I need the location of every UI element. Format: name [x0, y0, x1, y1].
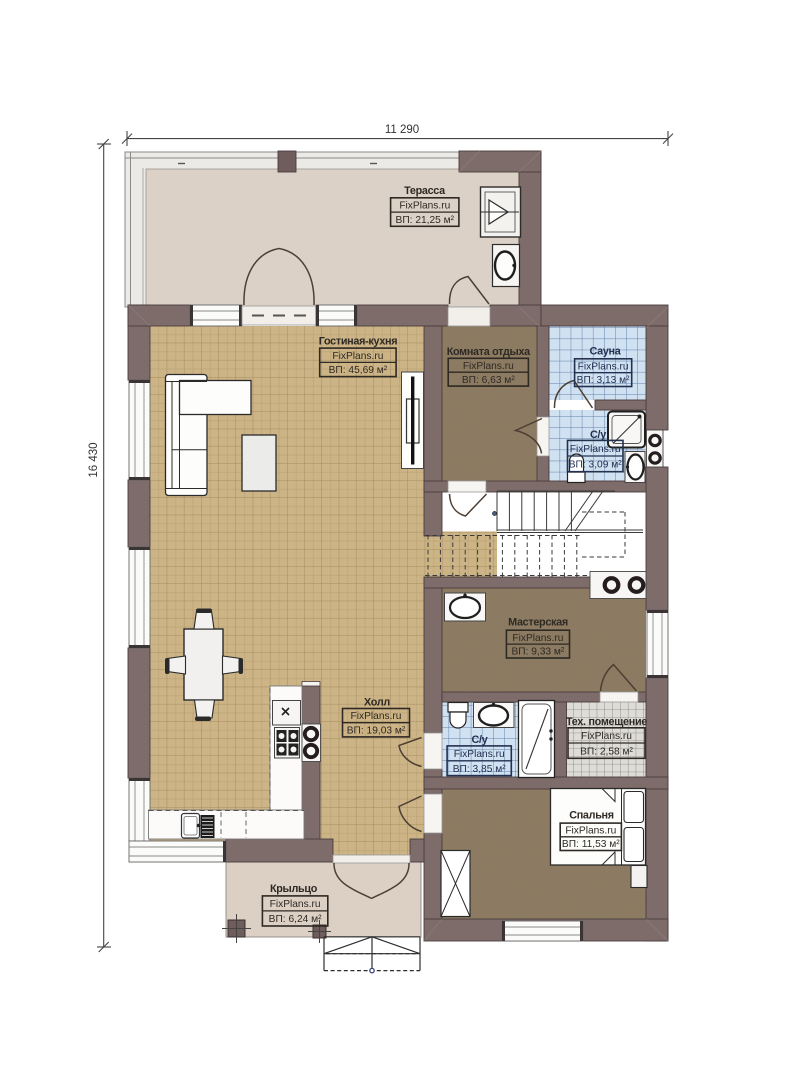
svg-text:ВП: 2,58 м²: ВП: 2,58 м² — [580, 746, 633, 757]
svg-text:FixPlans.ru: FixPlans.ru — [454, 749, 505, 760]
svg-text:ВП: 6,24 м²: ВП: 6,24 м² — [269, 914, 322, 925]
svg-text:ВП: 11,53 м²: ВП: 11,53 м² — [562, 839, 620, 850]
svg-text:Сауна: Сауна — [590, 346, 622, 358]
svg-text:FixPlans.ru: FixPlans.ru — [399, 201, 450, 212]
svg-text:С/у: С/у — [472, 734, 488, 746]
svg-text:ВП: 9,33 м²: ВП: 9,33 м² — [511, 647, 564, 658]
svg-text:ВП: 3,09 м²: ВП: 3,09 м² — [569, 460, 622, 471]
svg-text:FixPlans.ru: FixPlans.ru — [570, 444, 621, 455]
svg-text:FixPlans.ru: FixPlans.ru — [581, 731, 632, 742]
svg-text:FixPlans.ru: FixPlans.ru — [512, 633, 563, 644]
svg-text:Холл: Холл — [364, 697, 390, 709]
svg-text:С/у: С/у — [590, 429, 606, 441]
svg-text:ВП: 21,25 м²: ВП: 21,25 м² — [396, 215, 455, 226]
svg-text:FixPlans.ru: FixPlans.ru — [463, 361, 514, 372]
svg-text:FixPlans.ru: FixPlans.ru — [270, 899, 321, 910]
svg-text:FixPlans.ru: FixPlans.ru — [578, 361, 629, 372]
svg-text:ВП: 3,85 м²: ВП: 3,85 м² — [453, 764, 506, 775]
svg-text:16 430: 16 430 — [88, 442, 100, 477]
svg-text:Терасса: Терасса — [404, 185, 446, 197]
svg-text:ВП: 3,13 м²: ВП: 3,13 м² — [577, 375, 630, 386]
svg-text:ВП: 19,03 м²: ВП: 19,03 м² — [347, 725, 406, 736]
svg-text:Гостиная-кухня: Гостиная-кухня — [319, 336, 398, 348]
svg-text:Спальня: Спальня — [569, 810, 614, 822]
svg-text:Тех. помещение: Тех. помещение — [566, 716, 647, 728]
svg-text:ВП: 6,63 м²: ВП: 6,63 м² — [462, 375, 515, 386]
svg-text:11 290: 11 290 — [385, 124, 419, 136]
svg-text:Комната отдыха: Комната отдыха — [447, 346, 531, 358]
svg-text:Мастерская: Мастерская — [508, 617, 568, 629]
svg-text:FixPlans.ru: FixPlans.ru — [565, 826, 616, 837]
svg-text:FixPlans.ru: FixPlans.ru — [351, 711, 402, 722]
svg-text:Крыльцо: Крыльцо — [270, 883, 318, 895]
svg-text:ВП: 45,69 м²: ВП: 45,69 м² — [329, 365, 388, 376]
svg-text:FixPlans.ru: FixPlans.ru — [332, 351, 383, 362]
